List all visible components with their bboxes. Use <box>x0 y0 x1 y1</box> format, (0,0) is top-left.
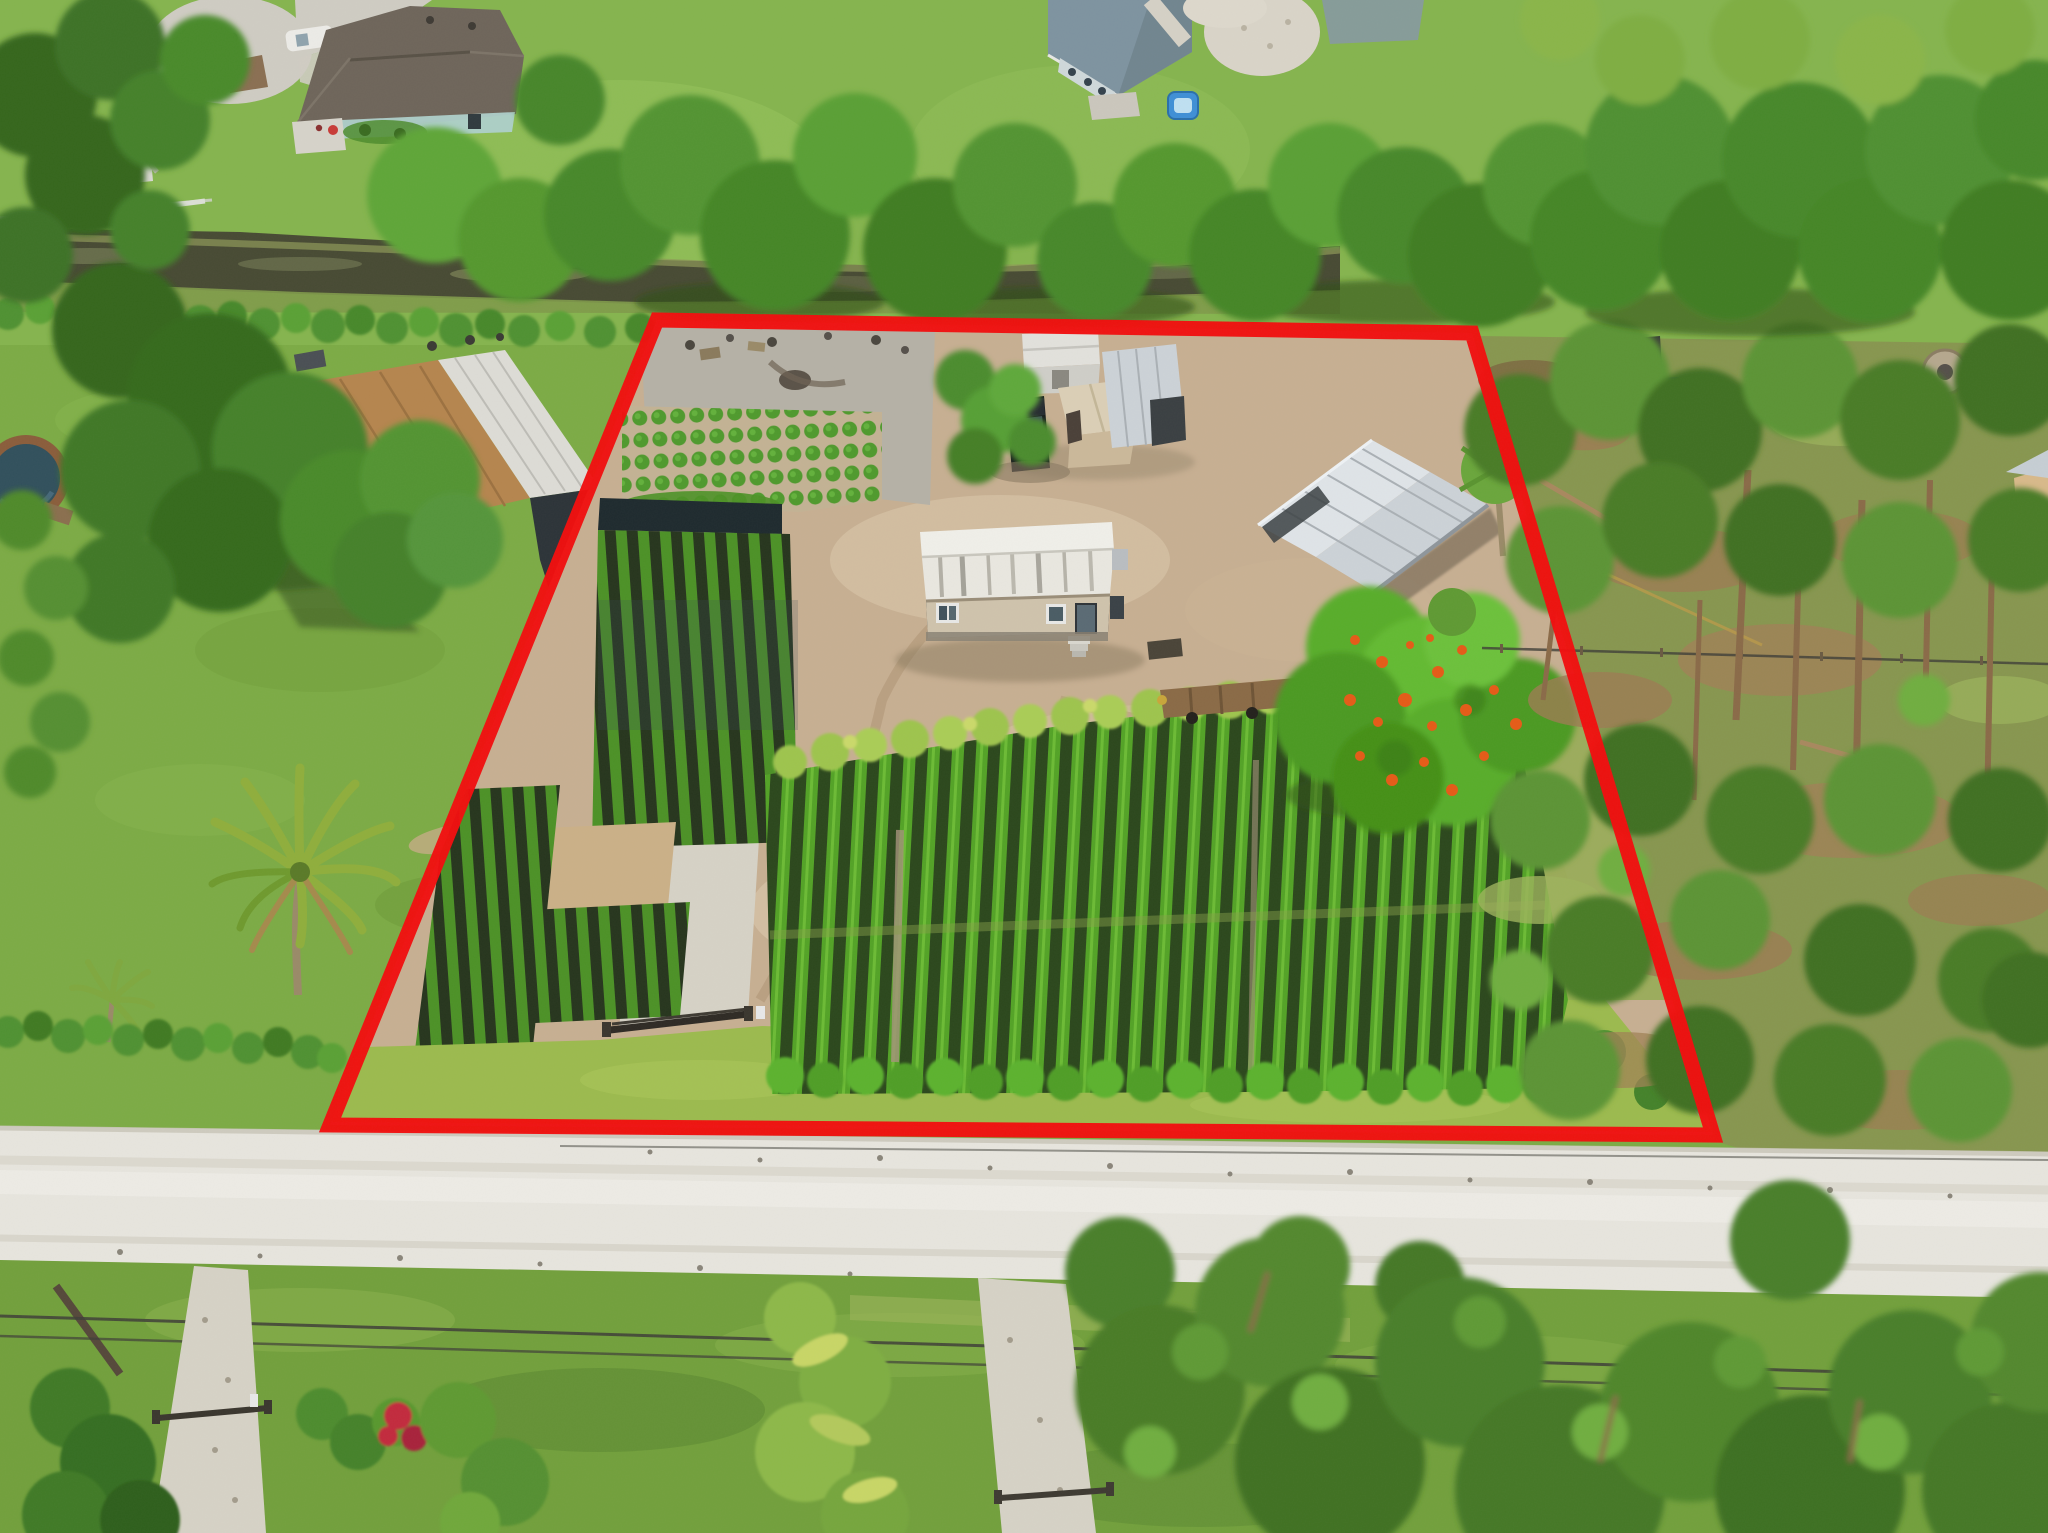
aerial-photo <box>0 0 2048 1533</box>
film-grain-overlay <box>0 0 2048 1533</box>
aerial-photo-canvas <box>0 0 2048 1533</box>
